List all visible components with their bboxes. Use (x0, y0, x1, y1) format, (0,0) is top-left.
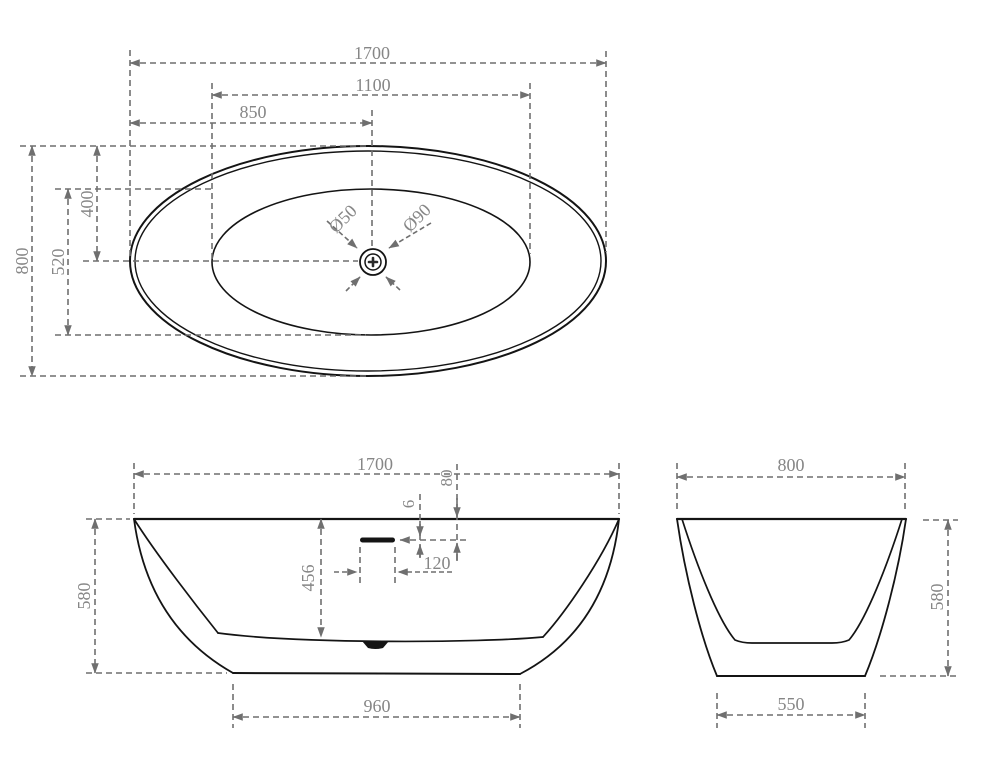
dim-label-front-80: 80 (437, 470, 456, 487)
front-right-outer-profile (520, 519, 619, 674)
front-drain-bump (362, 641, 389, 649)
side-view-outline (677, 519, 906, 676)
dim-base-length: 960 (233, 684, 520, 728)
dim-front-overall-length: 1700 (134, 454, 619, 514)
dim-label-side-550: 550 (778, 694, 805, 714)
dim-inner-depth: 456 (298, 519, 321, 637)
top-view: 1700 1100 850 800 (12, 43, 606, 376)
dim-side-overall-width: 800 (677, 455, 905, 512)
dim-label-front-6: 6 (399, 500, 418, 509)
dim-label-side-580: 580 (927, 584, 947, 611)
dim-front-overall-height: 580 (74, 519, 227, 673)
dim-label-top-1100: 1100 (355, 75, 390, 95)
dim-label-front-580: 580 (74, 583, 94, 610)
dim-label-side-800: 800 (778, 455, 805, 475)
front-view: 1700 80 6 (74, 454, 619, 728)
dim-label-front-456: 456 (298, 565, 318, 592)
side-view-dimensions: 800 580 550 (677, 455, 958, 728)
drain-cross-icon (369, 258, 377, 266)
dim-label-front-960: 960 (364, 696, 391, 716)
bathtub-technical-drawing: 1700 1100 850 800 (0, 0, 1000, 767)
overflow-slot (360, 538, 395, 543)
front-view-outline (134, 519, 619, 674)
dim-overflow-from-rim: 80 (437, 464, 457, 562)
dim-label-drain-d50: Ø50 (325, 201, 361, 237)
top-view-outline (130, 146, 606, 376)
dim-drain-diameters: Ø50 Ø90 (325, 200, 435, 291)
tub-outer-rim (130, 146, 606, 376)
dim-label-top-400: 400 (77, 191, 97, 218)
dim-label-top-1700: 1700 (354, 43, 390, 63)
dim-label-top-800: 800 (12, 248, 32, 275)
dim-overflow-slot-width: 120 (334, 547, 452, 584)
dim-label-drain-d90: Ø90 (399, 200, 435, 236)
front-right-inner-profile (543, 519, 619, 637)
dim-side-base-width: 550 (717, 693, 865, 728)
front-bottom-line (233, 673, 520, 674)
dim-label-top-520: 520 (48, 249, 68, 276)
top-view-dimensions: 1700 1100 850 800 (12, 43, 606, 376)
side-right-outer-profile (865, 519, 906, 676)
side-view: 800 580 550 (677, 455, 958, 728)
front-left-inner-profile (134, 519, 218, 633)
dim-label-top-850: 850 (240, 102, 267, 122)
front-inner-bottom-crease (218, 633, 543, 641)
dim-side-overall-height: 580 (880, 520, 958, 676)
dim-label-front-1700: 1700 (357, 454, 393, 474)
side-inner-profile (682, 519, 902, 643)
dim-label-front-120: 120 (424, 553, 451, 573)
dim-overflow-slot-height: 6 (399, 494, 420, 558)
